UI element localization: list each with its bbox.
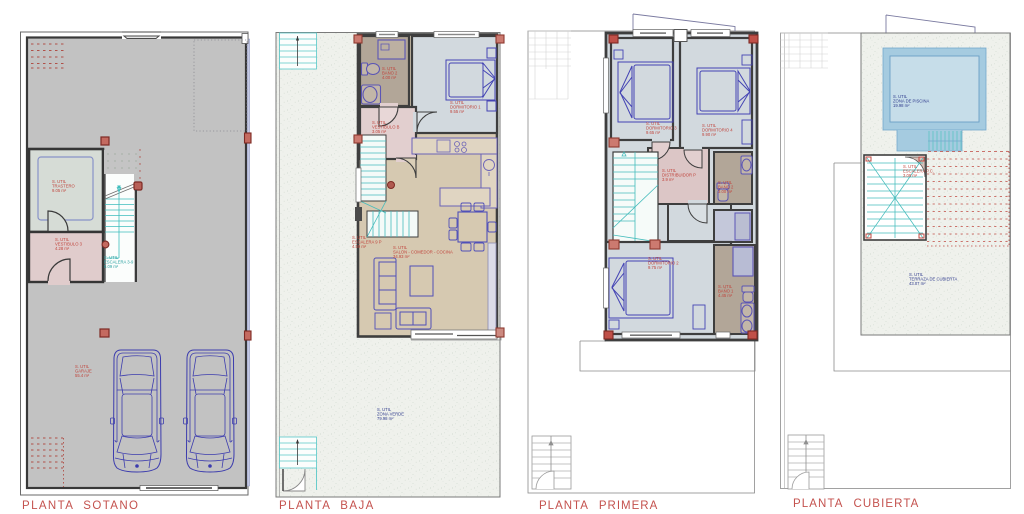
svg-text:S. UTILBAÑO 24.00 m²: S. UTILBAÑO 24.00 m² [382, 66, 398, 80]
svg-text:S. UTILBAÑO 14.45 m²: S. UTILBAÑO 14.45 m² [718, 284, 734, 298]
svg-text:PLANTAPRIMERA: PLANTAPRIMERA [539, 500, 658, 512]
svg-text:PLANTACUBIERTA: PLANTACUBIERTA [793, 498, 919, 510]
svg-text:S. UTILBAÑO 23.00 m²: S. UTILBAÑO 23.00 m² [718, 180, 734, 194]
svg-text:PLANTABAJA: PLANTABAJA [279, 500, 375, 512]
